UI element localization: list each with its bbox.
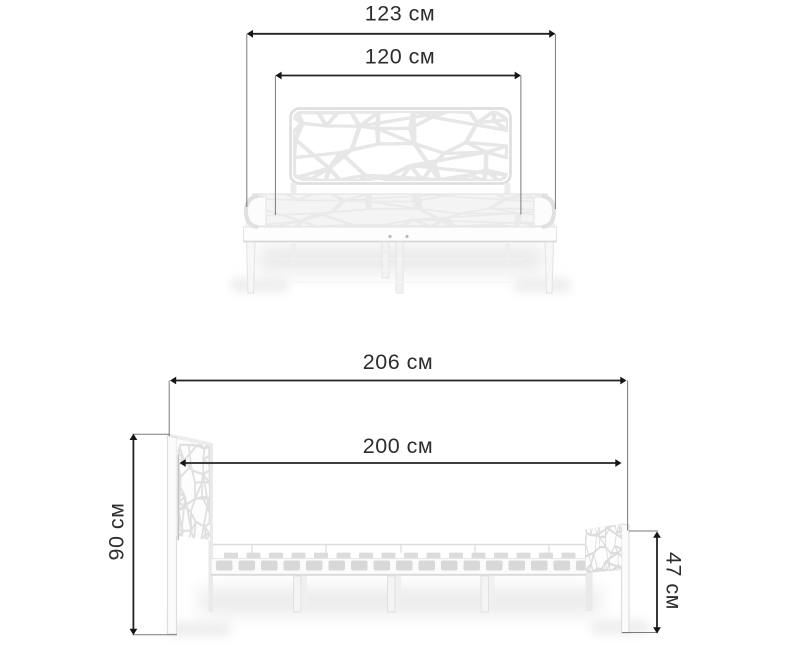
svg-text:47 см: 47 см (662, 552, 686, 610)
svg-text:200 см: 200 см (363, 434, 433, 458)
svg-text:123 см: 123 см (365, 2, 435, 26)
svg-text:90 см: 90 см (105, 503, 129, 561)
svg-text:206 см: 206 см (363, 350, 433, 374)
svg-text:120 см: 120 см (365, 44, 435, 68)
